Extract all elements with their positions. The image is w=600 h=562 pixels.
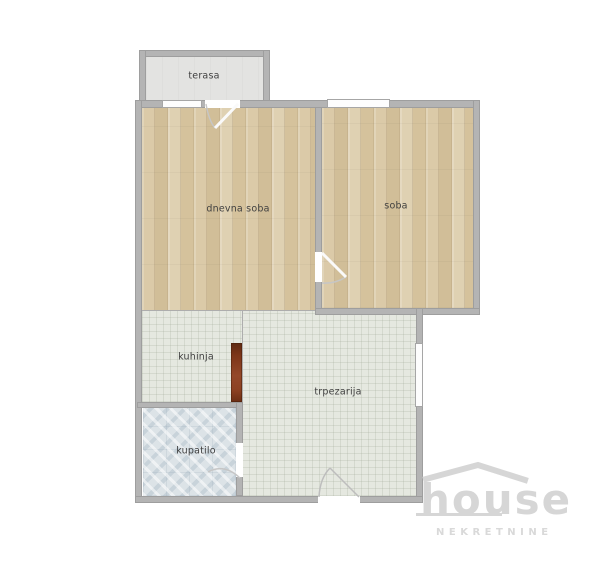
agency-logo: house NEKRETNINE [398,452,588,552]
kitchen-dining-divider-line [242,311,243,402]
logo-brand-text: house [420,475,572,524]
wood-tile-boundary-line [142,310,316,311]
wall-bathroom-top [137,402,243,408]
wall-soba-bottom [315,308,480,315]
room-label-soba: soba [384,201,407,212]
terrace-door-opening [205,100,240,108]
room-label-terasa: terasa [188,71,219,82]
room-label-kupatilo: kupatilo [176,446,216,457]
logo-subtitle-text: NEKRETNINE [436,527,553,538]
wall-right-upper [473,100,480,315]
floorplan-canvas: terasa dnevna soba soba kuhinja trpezari… [0,0,600,562]
agency-watermark: house NEKRETNINE [398,452,588,552]
soba-window [327,99,390,108]
entrance-door-opening [318,496,360,503]
room-label-dnevna-soba: dnevna soba [206,204,269,215]
wall-bottom [135,496,423,503]
kitchen-counter [231,343,242,402]
room-label-trpezarija: trpezarija [314,387,361,398]
room-trpezarija-floor [242,311,416,496]
room-label-kuhinja: kuhinja [178,352,214,363]
divider-door-opening [315,252,322,282]
wall-left-outer [135,100,142,503]
wall-terrace-top [139,50,270,57]
terrace-window [162,100,202,108]
bathroom-door-opening [236,443,243,477]
dining-window [415,343,423,407]
